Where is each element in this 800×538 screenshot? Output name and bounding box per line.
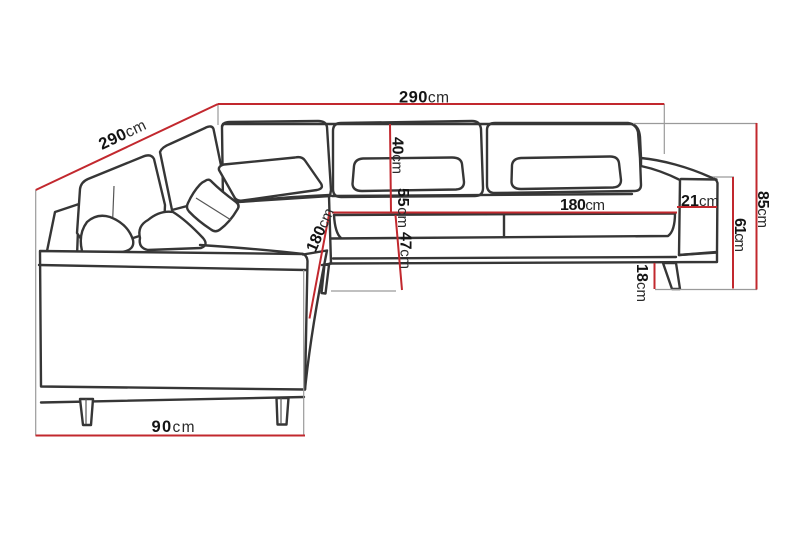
svg-text:180cm: 180cm	[560, 197, 605, 214]
svg-text:61cm: 61cm	[731, 218, 748, 252]
svg-text:90cm: 90cm	[152, 418, 195, 436]
svg-text:18cm: 18cm	[633, 264, 650, 302]
svg-text:55cm: 55cm	[394, 188, 411, 228]
svg-text:21cm: 21cm	[681, 193, 719, 210]
svg-text:40cm: 40cm	[389, 137, 406, 174]
svg-text:290cm: 290cm	[399, 89, 449, 107]
svg-text:47cm: 47cm	[397, 232, 414, 269]
svg-text:85cm: 85cm	[754, 191, 771, 228]
